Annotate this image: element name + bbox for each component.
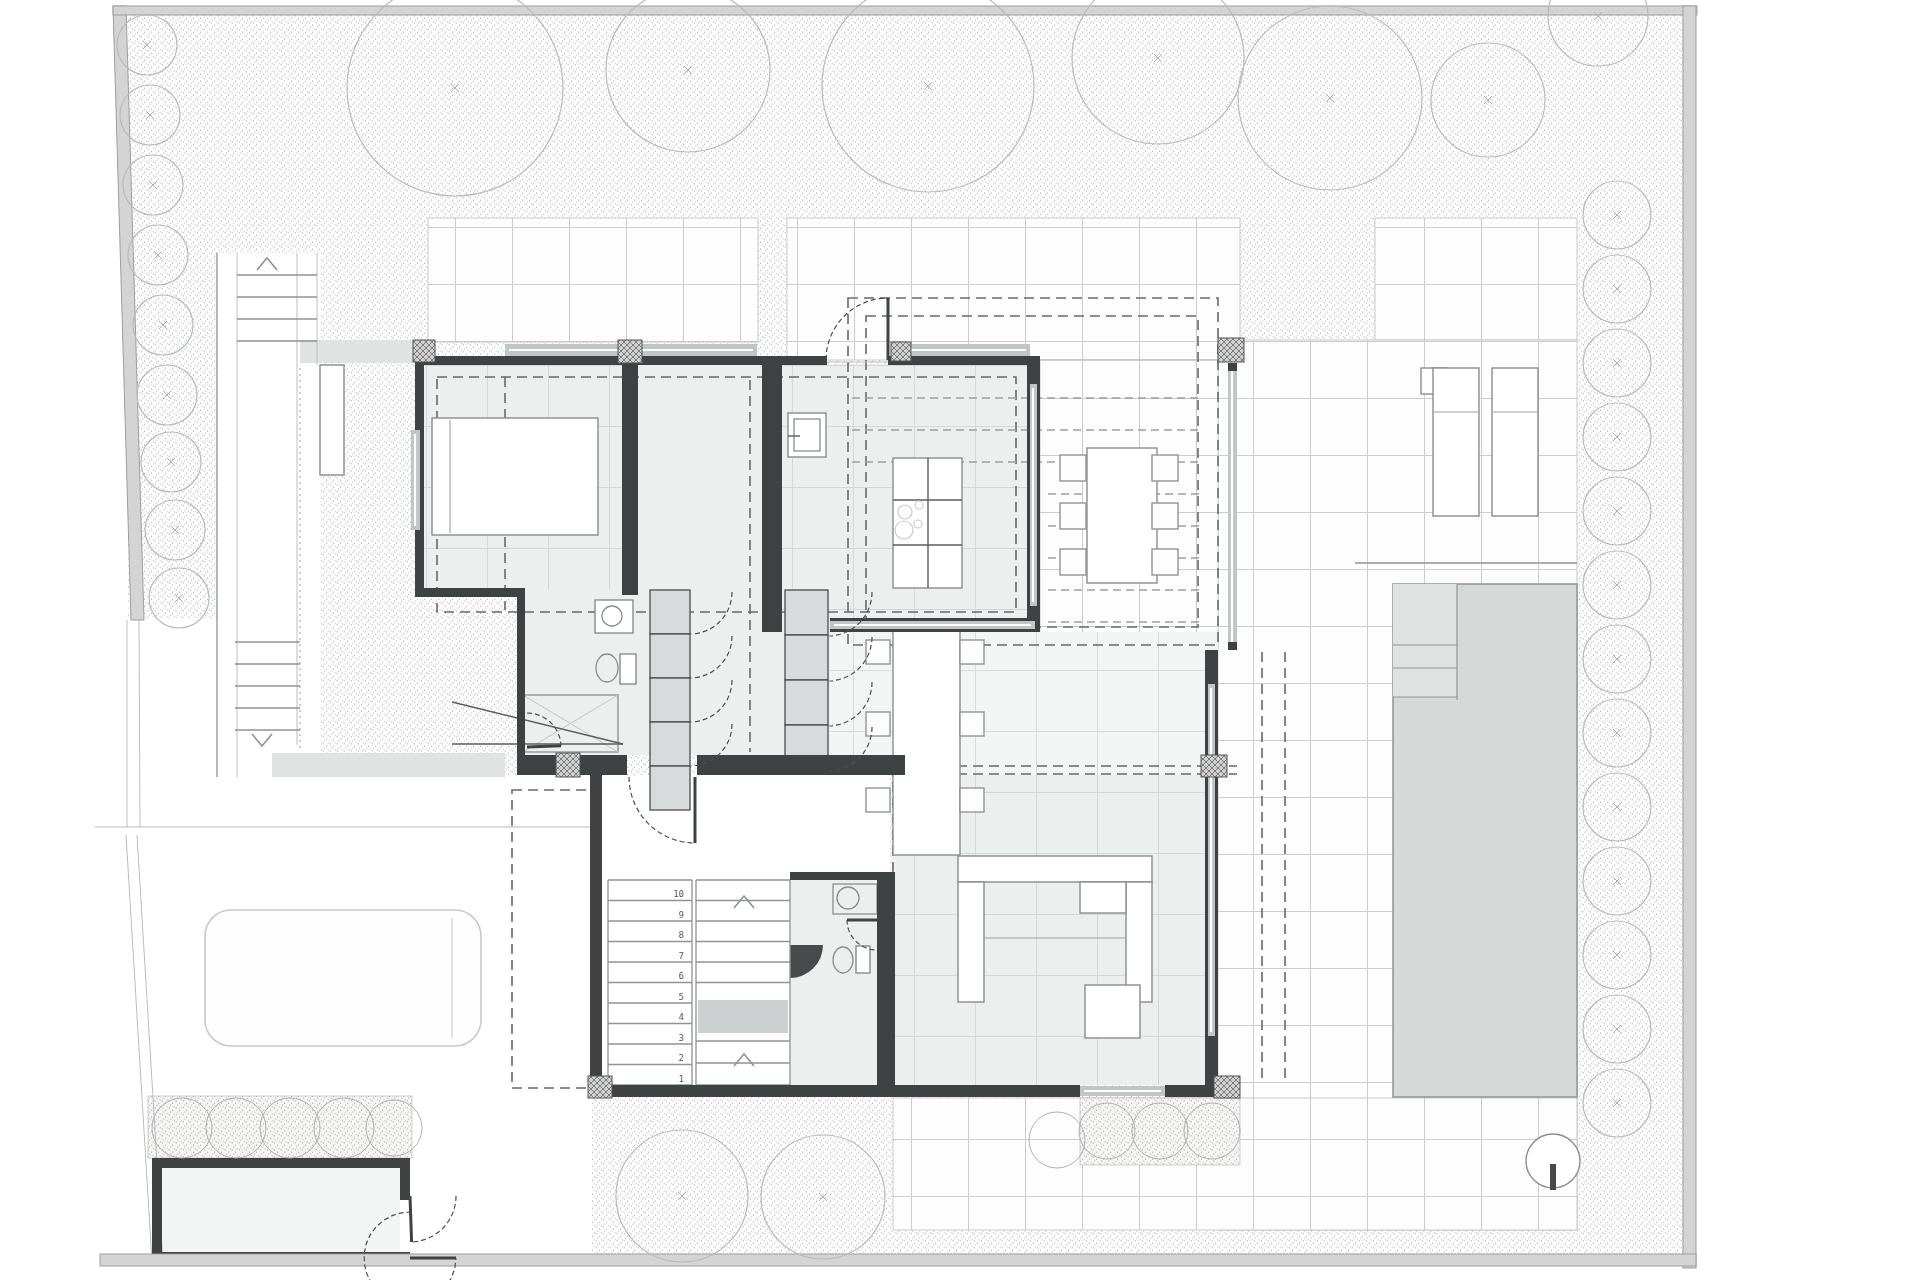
wall-bathroom2-east	[877, 872, 895, 1085]
wall-corridor-east	[762, 364, 782, 632]
walkway-lower	[272, 753, 505, 777]
step-number: 10	[673, 889, 684, 899]
dining-chair-2	[866, 712, 890, 736]
living-side-table	[1085, 985, 1140, 1038]
garage-gate-1-leaf	[410, 1196, 412, 1242]
step-number: 9	[679, 910, 684, 920]
deck-chair-3	[1060, 549, 1086, 575]
closet-cabinet-4	[650, 722, 690, 766]
wall-lower-west	[590, 775, 602, 1097]
step-number: 8	[679, 930, 684, 940]
wall-bathroom2-north	[790, 872, 877, 880]
boundary-south	[100, 1254, 1696, 1266]
exterior-stair-strip	[217, 253, 320, 777]
step-number: 6	[679, 971, 684, 981]
deck-chair-6	[1152, 549, 1178, 575]
bed	[432, 418, 598, 535]
wall-hall-south-2	[697, 755, 905, 775]
garage-wall-east	[400, 1158, 410, 1200]
column-hatch	[1201, 755, 1227, 777]
wall-ensuite-west	[517, 590, 525, 755]
garage-wall-west	[152, 1158, 162, 1262]
column-hatch	[1218, 338, 1244, 362]
column-hatch	[413, 340, 435, 362]
dining-chair-5	[960, 712, 984, 736]
closet-cabinet-1	[650, 590, 690, 634]
wall-dining-south-b	[830, 629, 1035, 632]
bathroom2-toilet-tank	[856, 946, 870, 973]
closet-cabinet-3	[650, 678, 690, 722]
boundary-north	[113, 6, 1697, 15]
column-hatch	[891, 342, 911, 361]
dining-chair-3	[866, 788, 890, 812]
garage-wall-north	[152, 1158, 410, 1168]
outdoor-shower-post	[1550, 1164, 1556, 1190]
deck-chair-5	[1152, 503, 1178, 529]
ensuite-door-leaf	[527, 746, 561, 747]
car-outline	[205, 910, 481, 1046]
step-number: 4	[679, 1012, 684, 1022]
dining-chair-1	[866, 640, 890, 664]
deck-glass-post-2	[1228, 642, 1237, 650]
hedge-strip-left-dots	[148, 1096, 412, 1158]
wall-dining-south-a	[830, 618, 1035, 621]
deck-glass-post-1	[1228, 363, 1237, 371]
hedge-strip-right-dots	[1080, 1098, 1240, 1165]
dining-chair-4	[960, 640, 984, 664]
sofa-arm-left	[958, 882, 984, 1002]
floor-plan-page: 12345678910	[0, 0, 1920, 1280]
column-hatch	[588, 1076, 612, 1098]
deck-chair-4	[1152, 455, 1178, 481]
kitchen-cabinet-3	[785, 680, 828, 725]
step-number: 3	[679, 1033, 684, 1043]
kitchen-cabinet-1	[785, 590, 828, 635]
step-number: 2	[679, 1053, 684, 1063]
walkway-top	[300, 340, 418, 363]
planter	[320, 365, 344, 475]
paving-strip-a-grid	[428, 218, 758, 342]
boundary-east	[1683, 6, 1696, 1268]
wall-lower-south-1	[590, 1085, 1080, 1097]
garage-floor	[162, 1168, 400, 1256]
sun-lounger-1	[1433, 368, 1479, 516]
closet-cabinet-2	[650, 634, 690, 678]
kitchen-cabinet-2	[785, 635, 828, 680]
sofa-arm-right	[1126, 882, 1152, 1002]
step-number: 7	[679, 951, 684, 961]
column-hatch	[556, 753, 580, 777]
sofa-ottoman	[1080, 882, 1126, 913]
wall-bedroom-east	[622, 364, 638, 595]
paving-strip-b-grid	[787, 218, 1240, 360]
column-hatch	[618, 340, 642, 363]
stair-landing	[698, 1000, 788, 1033]
ensuite-vanity	[595, 600, 633, 633]
deck-chair-1	[1060, 455, 1086, 481]
step-number: 1	[679, 1074, 684, 1084]
ensuite-toilet-tank	[620, 654, 636, 684]
pool-steps	[1393, 584, 1457, 697]
dining-chair-6	[960, 788, 984, 812]
floor-plan-drawing: 12345678910	[0, 0, 1920, 1280]
column-hatch	[1214, 1076, 1240, 1098]
closet-cabinet-5	[650, 766, 690, 810]
dining-table	[893, 625, 960, 855]
wall-bedroom-south	[415, 588, 525, 597]
patio-top-right-grid	[1375, 218, 1577, 340]
step-number: 5	[679, 992, 684, 1002]
sofa-back	[958, 856, 1152, 882]
deck-table	[1087, 448, 1157, 583]
sun-lounger-2	[1492, 368, 1538, 516]
deck-chair-2	[1060, 503, 1086, 529]
